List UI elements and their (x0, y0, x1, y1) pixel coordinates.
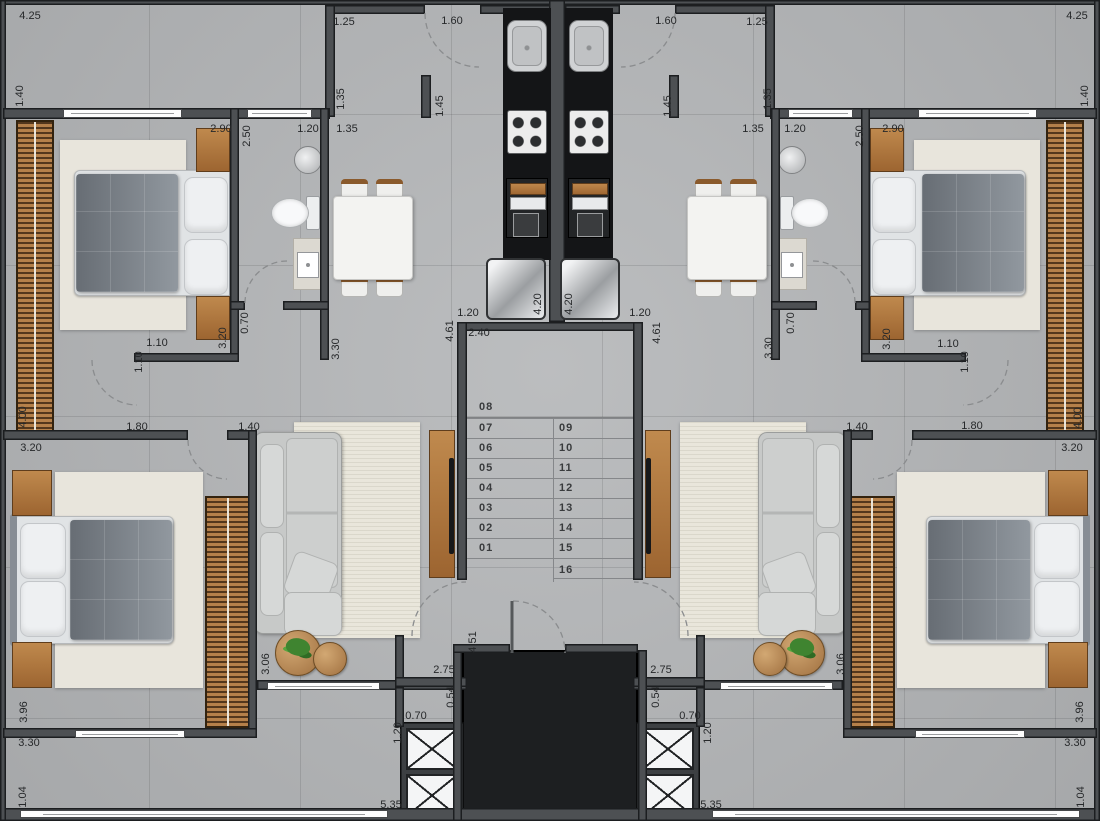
wall (134, 353, 239, 362)
stair-step-number: 14 (559, 522, 573, 534)
stair-step-number: 13 (559, 502, 573, 514)
window (267, 682, 380, 690)
window (247, 109, 312, 118)
dining-chair (730, 277, 757, 297)
dimension-label: 0.70 (785, 312, 797, 333)
stair-step-number: 16 (559, 564, 573, 576)
window (788, 109, 853, 118)
dimension-label: 4.25 (19, 10, 40, 22)
nightstand (1048, 642, 1088, 688)
wall (675, 5, 770, 14)
stairwell-void (462, 650, 638, 821)
window (20, 810, 388, 818)
dimension-label: 1.10 (959, 351, 971, 372)
dimension-label: 3.30 (18, 737, 39, 749)
window (712, 810, 1080, 818)
stair-step-number: 12 (559, 482, 573, 494)
dimension-label: 1.45 (434, 95, 446, 116)
shower-head (294, 146, 322, 174)
window (918, 109, 1037, 118)
bed-duvet (70, 520, 172, 640)
dimension-label: 0.70 (679, 710, 700, 722)
wall (457, 322, 467, 580)
bathroom-sink (297, 252, 319, 278)
bed-pillow (184, 239, 228, 295)
kitchen-sink (569, 20, 609, 72)
bed-duvet (922, 174, 1024, 292)
dimension-label: 1.20 (457, 307, 478, 319)
dimension-label: 3.06 (835, 653, 847, 674)
dimension-label: 3.06 (260, 653, 272, 674)
floor-plan: 4.251.401.251.601.601.254.251.401.351.45… (0, 0, 1100, 821)
dimension-label: 4.00 (17, 406, 29, 427)
tv (449, 458, 454, 554)
wall (771, 301, 817, 310)
sofa-back-cushion (816, 532, 840, 616)
dining-chair (341, 277, 368, 297)
wall (638, 650, 647, 821)
bed-duvet (928, 520, 1030, 640)
dimension-label: 1.40 (14, 85, 26, 106)
nightstand (12, 470, 52, 516)
coffee-table (753, 642, 787, 676)
stair-step-number: 08 (479, 401, 493, 413)
dimension-label: 1.35 (336, 123, 357, 135)
stair-step-number: 09 (559, 422, 573, 434)
wall (0, 0, 6, 821)
dining-chair (695, 277, 722, 297)
stair-step-number: 10 (559, 442, 573, 454)
toilet (271, 198, 309, 228)
dimension-label: 0.70 (405, 710, 426, 722)
drawer (572, 183, 608, 195)
stair-step-number: 06 (479, 442, 493, 454)
wardrobe (1046, 120, 1084, 434)
wall (230, 301, 245, 310)
dimension-label: 0.70 (239, 312, 251, 333)
dimension-label: 2.75 (433, 664, 454, 676)
dimension-label: 1.40 (846, 421, 867, 433)
dimension-label: 3.20 (20, 442, 41, 454)
wardrobe (849, 496, 895, 728)
dimension-label: 3.30 (763, 337, 775, 358)
coffee-table (313, 642, 347, 676)
sofa-back-cushion (260, 532, 284, 616)
stair-step-number: 11 (559, 462, 573, 474)
dimension-label: 1.40 (238, 421, 259, 433)
wardrobe (205, 496, 251, 728)
wall (861, 353, 966, 362)
dimension-label: 2.50 (241, 125, 253, 146)
dimension-label: 1.10 (133, 351, 145, 372)
stair-step-number: 02 (479, 522, 493, 534)
window (75, 730, 185, 738)
dimension-label: 1.10 (146, 337, 167, 349)
bed-pillow (872, 177, 916, 233)
wall (248, 430, 257, 730)
stair-step-number: 04 (479, 482, 493, 494)
kitchen-cabinet (568, 178, 610, 238)
wall (771, 108, 780, 360)
dimension-label: 4.61 (444, 320, 456, 341)
dimension-label: 1.45 (662, 95, 674, 116)
dimension-label: 1.04 (17, 786, 29, 807)
wall (633, 322, 643, 580)
wardrobe (16, 120, 54, 434)
toilet (791, 198, 829, 228)
wall (320, 108, 329, 360)
window (63, 109, 182, 118)
nightstand (1048, 470, 1088, 516)
shower-head (778, 146, 806, 174)
kitchen-sink (507, 20, 547, 72)
dimension-label: 1.40 (1079, 85, 1091, 106)
dimension-label: 5.35 (700, 799, 721, 811)
wall (395, 687, 404, 727)
bed-pillow (872, 239, 916, 295)
tv (646, 458, 651, 554)
dimension-label: 3.20 (217, 327, 229, 348)
dimension-label: 1.80 (126, 421, 147, 433)
elevator-cab (406, 728, 458, 770)
wall (421, 75, 431, 118)
window (915, 730, 1025, 738)
wall (230, 108, 239, 362)
wall (843, 430, 852, 730)
dimension-label: 1.80 (961, 420, 982, 432)
stair-step-number: 01 (479, 542, 493, 554)
dimension-label: 5.35 (380, 799, 401, 811)
wall (283, 301, 329, 310)
dimension-label: 1.20 (629, 307, 650, 319)
dimension-label: 4.00 (1072, 407, 1084, 428)
stair-step-number: 05 (479, 462, 493, 474)
bed-pillow (1034, 581, 1080, 637)
dimension-label: 2.50 (854, 125, 866, 146)
dimension-label: 1.35 (742, 123, 763, 135)
prep-sink (577, 213, 603, 237)
stair-step-number: 15 (559, 542, 573, 554)
nightstand (12, 642, 52, 688)
dimension-label: 1.20 (784, 123, 805, 135)
dimension-label: 4.61 (651, 322, 663, 343)
sofa-back-cushion (260, 444, 284, 528)
drawer (510, 183, 546, 195)
bed-duvet (76, 174, 178, 292)
dimension-label: 2.75 (650, 664, 671, 676)
dimension-label: 1.35 (762, 88, 774, 109)
dimension-label: 1.60 (655, 15, 676, 27)
dimension-label: 1.60 (441, 15, 462, 27)
prep-sink (513, 213, 539, 237)
dimension-label: 3.30 (1064, 737, 1085, 749)
wall (912, 430, 1097, 440)
dining-table (687, 196, 767, 280)
dimension-label: 0.54 (650, 686, 662, 707)
sofa-back-cushion (816, 444, 840, 528)
wall (1094, 0, 1100, 821)
bed-headboard (10, 514, 17, 646)
dining-chair (376, 277, 403, 297)
bathroom-sink (781, 252, 803, 278)
dimension-label: 4.51 (467, 631, 479, 652)
sofa-chaise (758, 592, 816, 636)
stair-step-number: 03 (479, 502, 493, 514)
dimension-label: 4.25 (1066, 10, 1087, 22)
bed-headboard (1083, 514, 1090, 646)
bed-pillow (20, 581, 66, 637)
dimension-label: 3.30 (330, 338, 342, 359)
kitchen-cabinet (506, 178, 548, 238)
dimension-label: 1.35 (335, 88, 347, 109)
bed-pillow (184, 177, 228, 233)
dimension-label: 4.20 (532, 293, 544, 314)
dimension-label: 1.10 (937, 338, 958, 350)
dimension-label: 3.20 (1061, 442, 1082, 454)
stove (507, 110, 547, 154)
wall (453, 644, 510, 653)
dimension-label: 2.40 (468, 327, 489, 339)
elevator-cab (642, 728, 694, 770)
dimension-label: 3.96 (18, 701, 30, 722)
wall (565, 644, 638, 653)
dimension-label: 3.96 (1074, 701, 1086, 722)
drawer (510, 197, 546, 210)
wall (3, 430, 188, 440)
window (720, 682, 833, 690)
dimension-label: 1.04 (1075, 786, 1087, 807)
dimension-label: 1.20 (702, 722, 714, 743)
dimension-label: 2.90 (882, 123, 903, 135)
dimension-label: 2.90 (210, 123, 231, 135)
dimension-label: 0.54 (445, 686, 457, 707)
sofa-chaise (284, 592, 342, 636)
bed-pillow (1034, 523, 1080, 579)
bed-pillow (20, 523, 66, 579)
stair-step-number: 07 (479, 422, 493, 434)
dimension-label: 1.25 (746, 16, 767, 28)
dimension-label: 1.25 (333, 16, 354, 28)
dimension-label: 4.20 (563, 293, 575, 314)
dimension-label: 3.20 (881, 328, 893, 349)
stove (569, 110, 609, 154)
wall (330, 5, 425, 14)
dining-table (333, 196, 413, 280)
wall (855, 301, 870, 310)
dimension-label: 1.20 (392, 722, 404, 743)
dimension-label: 1.20 (297, 123, 318, 135)
drawer (572, 197, 608, 210)
